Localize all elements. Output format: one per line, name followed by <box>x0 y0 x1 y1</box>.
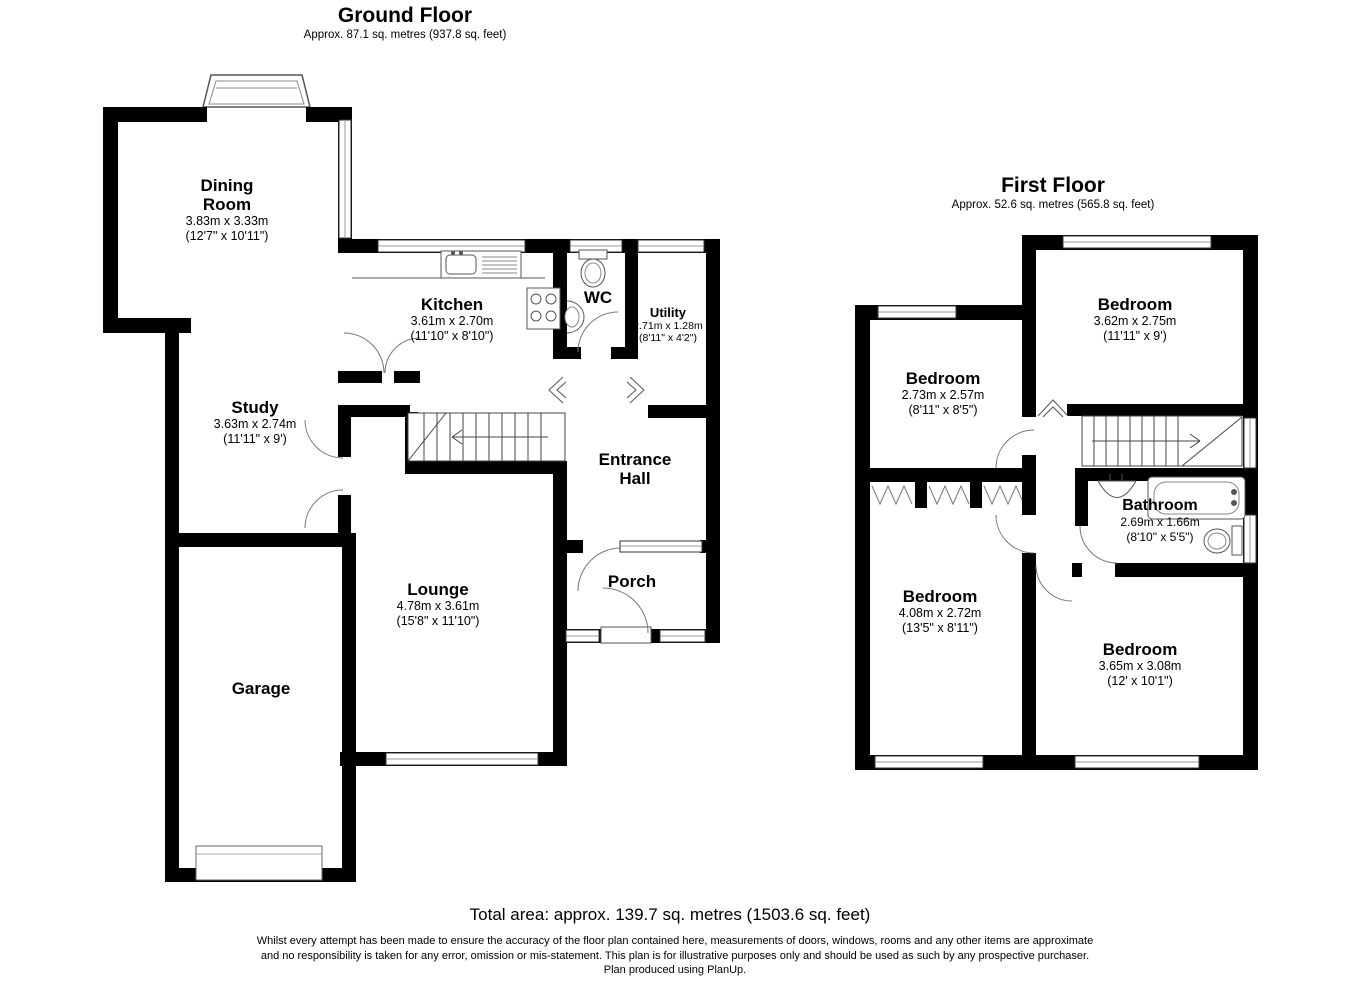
room-label-bedroom-bottom-left: Bedroom 4.08m x 2.72m (13'5" x 8'11") <box>899 587 982 636</box>
room-label-bedroom-top-left: Bedroom 2.73m x 2.57m (8'11" x 8'5") <box>902 369 985 418</box>
ground-floor-title-block: Ground Floor Approx. 87.1 sq. metres (93… <box>304 4 507 42</box>
window <box>1075 756 1199 768</box>
window <box>878 306 956 318</box>
window <box>339 120 351 238</box>
door-arc <box>1080 526 1117 563</box>
garage-door <box>196 846 322 880</box>
first-floor-title-block: First Floor Approx. 52.6 sq. metres (565… <box>952 174 1155 212</box>
floor-plan-page: Ground Floor Approx. 87.1 sq. metres (93… <box>0 0 1350 982</box>
ground-floor-subtitle: Approx. 87.1 sq. metres (937.8 sq. feet) <box>304 28 507 42</box>
kitchen-sink <box>441 251 521 278</box>
wc-basin <box>565 301 584 333</box>
room-label-bedroom-bottom-right: Bedroom 3.65m x 3.08m (12' x 10'1") <box>1099 640 1182 689</box>
landing-chevron <box>1038 400 1068 417</box>
door-arc <box>1036 565 1072 601</box>
door-arc <box>344 333 384 373</box>
floor-plan-drawing <box>0 0 1350 982</box>
room-label-entrance-hall: Entrance Hall <box>599 450 672 488</box>
open-doorway-chevrons <box>549 377 644 403</box>
first-floor-subtitle: Approx. 52.6 sq. metres (565.8 sq. feet) <box>952 198 1155 212</box>
wc-toilet <box>579 250 607 287</box>
hob <box>527 288 560 329</box>
window <box>1063 236 1211 248</box>
window <box>1244 515 1256 563</box>
front-door <box>601 627 651 643</box>
window <box>660 630 705 642</box>
room-label-dining: Dining Room 3.83m x 3.33m (12'7" x 10'11… <box>186 176 269 244</box>
window <box>386 753 538 765</box>
door-arc <box>603 588 648 633</box>
total-area: Total area: approx. 139.7 sq. metres (15… <box>470 905 871 925</box>
stairs-ground <box>408 413 565 461</box>
room-label-wc: WC <box>584 288 612 307</box>
room-label-garage: Garage <box>232 679 291 698</box>
room-label-kitchen: Kitchen 3.61m x 2.70m (11'10" x 8'10") <box>411 295 494 344</box>
room-label-study: Study 3.63m x 2.74m (11'11" x 9') <box>214 398 297 447</box>
ground-floor-title: Ground Floor <box>304 4 507 27</box>
window <box>875 756 983 768</box>
toilet <box>1204 526 1242 555</box>
room-label-utility: Utility 2.71m x 1.28m (8'11" x 4'2") <box>633 306 702 344</box>
window <box>566 630 599 642</box>
room-label-porch: Porch <box>608 572 656 591</box>
window <box>378 240 525 252</box>
stairs-first <box>1082 416 1242 466</box>
disclaimer: Whilst every attempt has been made to en… <box>257 934 1093 978</box>
wardrobes <box>872 486 1022 504</box>
room-label-bedroom-top-right: Bedroom 3.62m x 2.75m (11'11" x 9') <box>1094 295 1177 344</box>
window <box>1244 418 1256 468</box>
door-arc <box>305 420 343 458</box>
window <box>620 541 702 552</box>
first-floor-title: First Floor <box>952 174 1155 197</box>
room-label-bathroom: Bathroom 2.69m x 1.66m (8'10" x 5'5") <box>1120 496 1199 545</box>
door-arc <box>996 515 1034 553</box>
window <box>638 240 704 252</box>
bay-window <box>203 75 310 107</box>
room-label-lounge: Lounge 4.78m x 3.61m (15'8" x 11'10") <box>397 580 480 629</box>
door-arc <box>305 490 343 528</box>
